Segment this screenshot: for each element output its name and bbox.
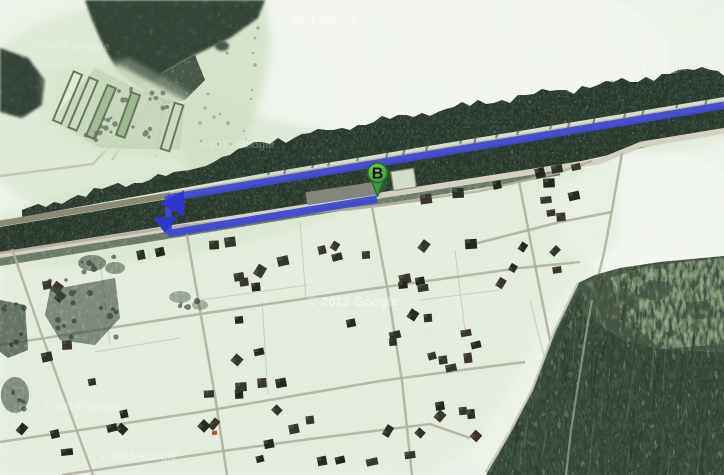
svg-text:© 2013 Google: © 2013 Google: [33, 41, 110, 53]
svg-text:© 2013 Google: © 2013 Google: [45, 401, 122, 413]
svg-text:© 2013 Google: © 2013 Google: [100, 451, 177, 463]
svg-text:© 2013 Google: © 2013 Google: [280, 15, 357, 27]
svg-text:© 2013 Google: © 2013 Google: [308, 294, 399, 309]
svg-text:© 2013 Google: © 2013 Google: [575, 257, 645, 268]
svg-text:© 2013 Google: © 2013 Google: [611, 62, 688, 74]
svg-text:B: B: [372, 166, 384, 183]
svg-text:© 2013 Google: © 2013 Google: [198, 139, 275, 151]
